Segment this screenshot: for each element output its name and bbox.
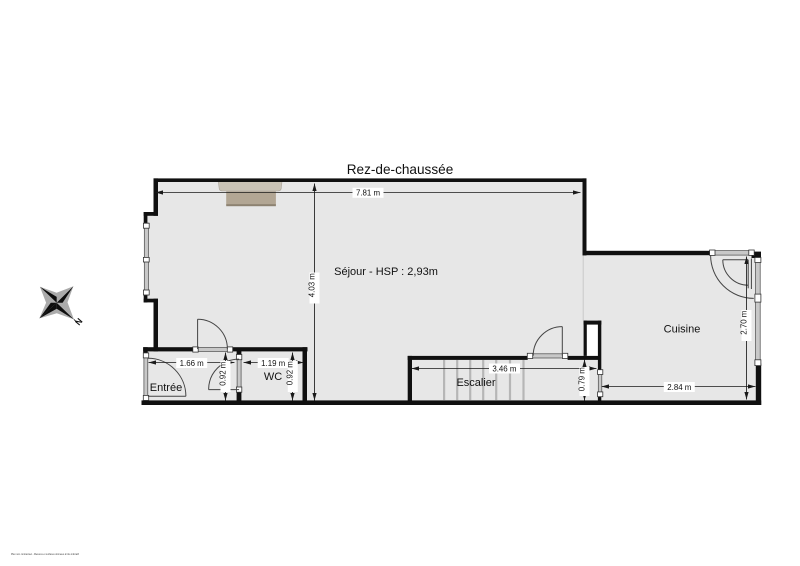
svg-text:3.46 m: 3.46 m: [492, 364, 517, 373]
svg-text:Entrée: Entrée: [150, 382, 182, 394]
svg-text:Séjour - HSP : 2,93m: Séjour - HSP : 2,93m: [334, 266, 438, 278]
svg-text:0.92 m: 0.92 m: [286, 361, 295, 386]
svg-text:2.84 m: 2.84 m: [667, 383, 692, 392]
svg-text:0.79 m: 0.79 m: [578, 367, 587, 392]
svg-text:Rez-de-chaussée: Rez-de-chaussée: [347, 162, 454, 177]
svg-text:Cuisine: Cuisine: [664, 324, 701, 336]
svg-text:N: N: [73, 316, 85, 327]
svg-text:0.92 m: 0.92 m: [219, 361, 228, 386]
svg-text:7.81 m: 7.81 m: [356, 189, 381, 198]
svg-text:Escalier: Escalier: [456, 377, 495, 389]
svg-text:1.66 m: 1.66 m: [180, 359, 205, 368]
svg-text:1.19 m: 1.19 m: [261, 359, 286, 368]
svg-text:4.03 m: 4.03 m: [308, 273, 317, 298]
svg-text:WC: WC: [264, 371, 282, 383]
svg-text:2.70 m: 2.70 m: [740, 310, 749, 335]
svg-text:Plan non contractuel - Mesures: Plan non contractuel - Mesures et surfac…: [11, 553, 79, 556]
